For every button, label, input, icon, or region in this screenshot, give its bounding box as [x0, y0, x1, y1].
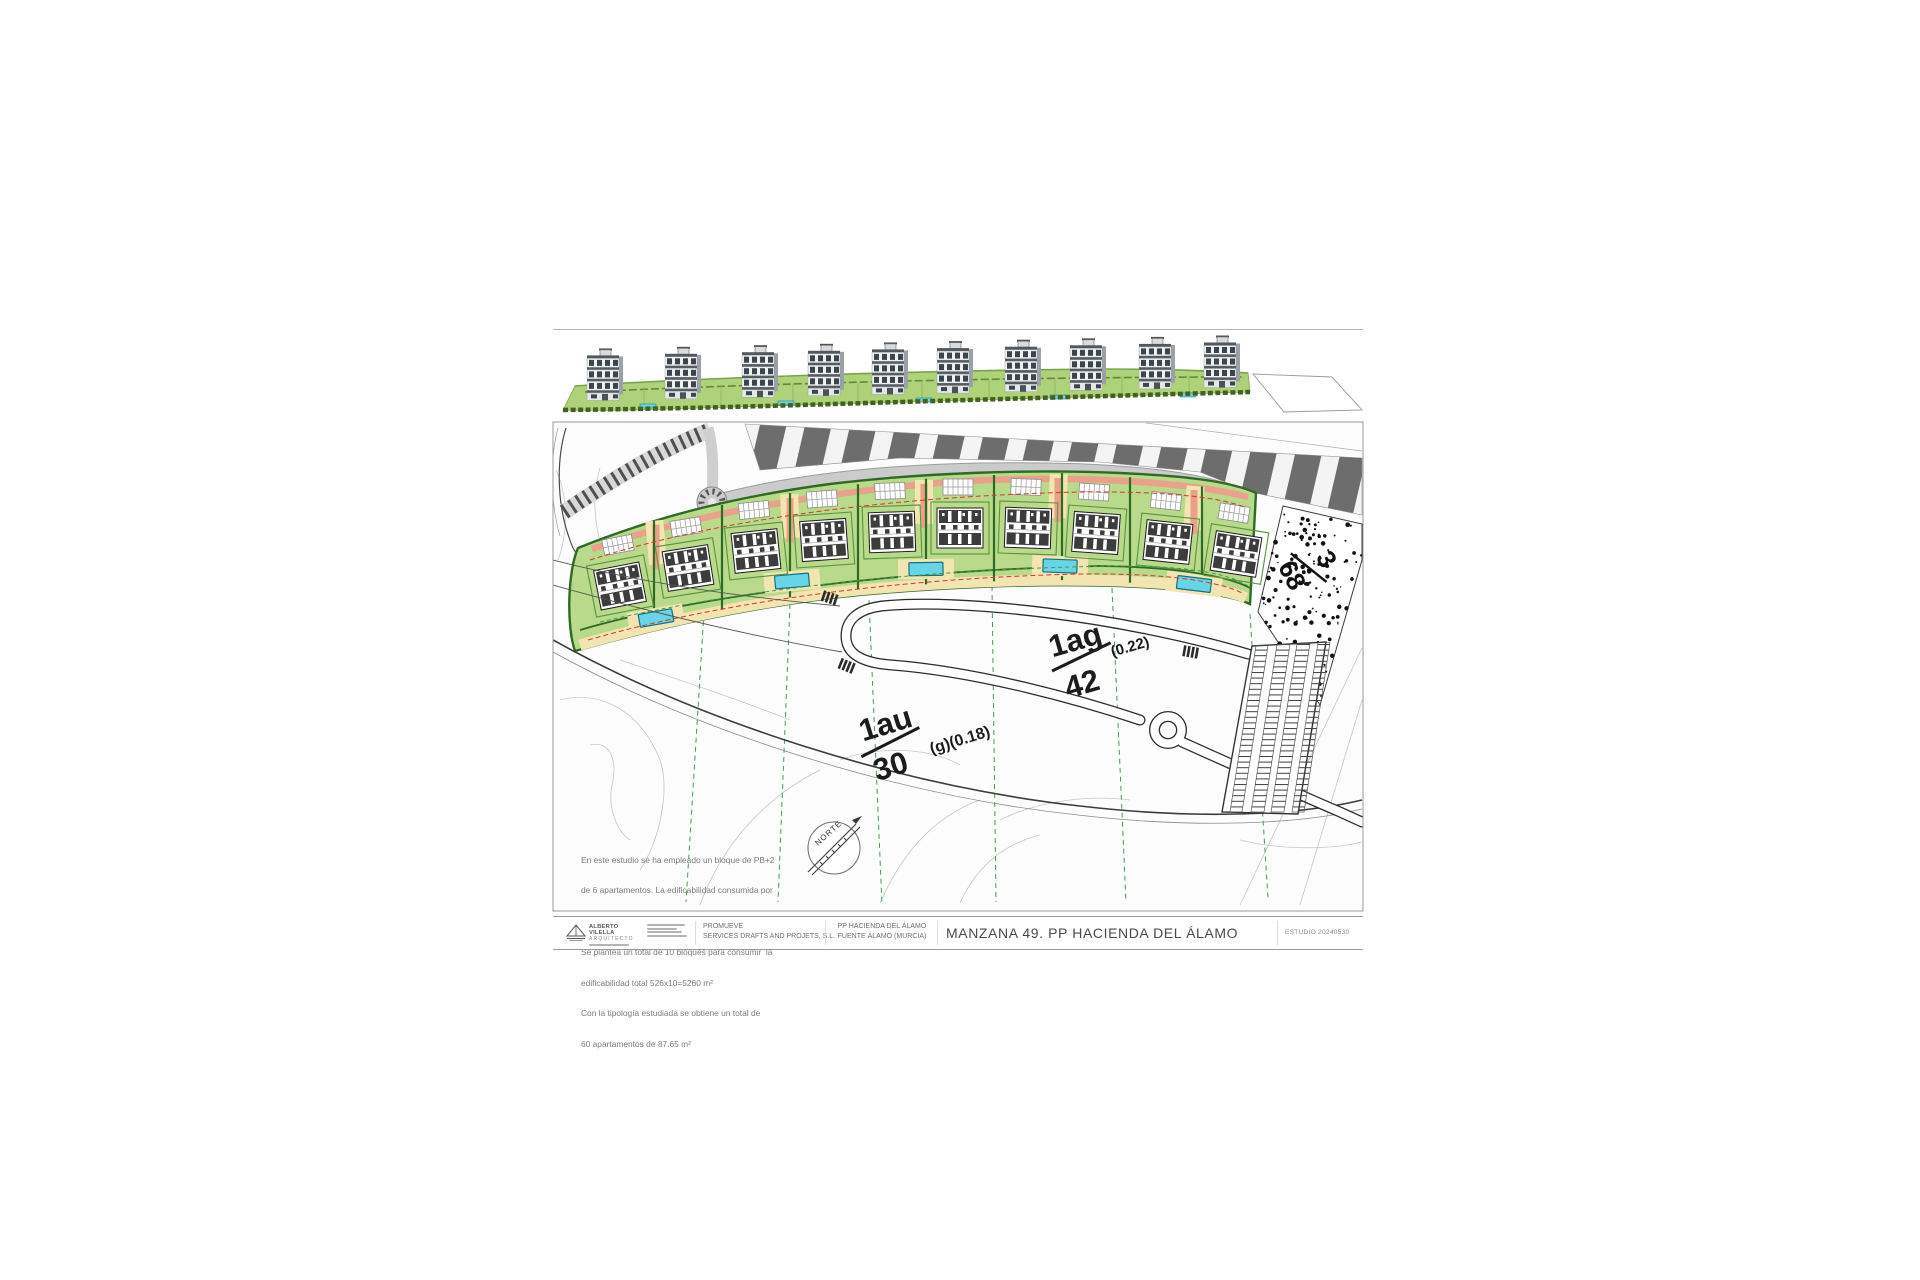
- speckle-dot: [1332, 577, 1336, 581]
- speckle-dot: [1352, 551, 1356, 555]
- parking-ladder: [875, 482, 906, 499]
- speckle-dot: [1286, 638, 1288, 640]
- speckle-dot: [1305, 542, 1309, 546]
- speckle-dot: [1350, 577, 1354, 581]
- speckle-dot: [1299, 535, 1304, 540]
- speckle-dot: [1355, 561, 1357, 563]
- swimming-pool: [774, 573, 809, 589]
- speckle-dot: [1350, 525, 1352, 527]
- project-location: FUENTE ÁLAMO (MURCIA): [833, 932, 931, 942]
- architect-subline: [589, 944, 629, 946]
- speckle-dot: [1309, 553, 1311, 555]
- title-block: ALBERTO VILELLA ARQUITECTO PROMUEVE SERV…: [553, 916, 1363, 950]
- elevation-building: [937, 341, 973, 393]
- speckle-dot: [1336, 615, 1340, 619]
- speckle-dot: [1328, 593, 1332, 597]
- speckle-dot: [1323, 534, 1326, 537]
- speckle-dot: [1293, 621, 1297, 625]
- speckle-dot: [1262, 597, 1266, 601]
- speckle-dot: [1272, 596, 1274, 598]
- speckle-dot: [1331, 616, 1335, 620]
- speckle-dot: [1327, 621, 1331, 625]
- project-name: PP HACIENDA DEL ÁLAMO: [833, 922, 931, 932]
- elevation-building: [587, 348, 623, 400]
- parking-ladder: [806, 490, 837, 508]
- speckle-dot: [1345, 522, 1350, 527]
- elevation-building: [808, 344, 844, 396]
- note-line: En este estudio se ha empleado un bloque…: [581, 855, 774, 865]
- speckle-dot: [1344, 561, 1346, 563]
- speckle-dot: [1265, 604, 1267, 606]
- speckle-dot: [1305, 532, 1307, 534]
- speckle-dot: [1273, 540, 1278, 545]
- speckle-dot: [1281, 620, 1284, 623]
- speckle-dot: [1314, 523, 1317, 526]
- elevation-building: [742, 345, 778, 397]
- sheet-reference: ESTUDIO 20240530: [1285, 929, 1349, 936]
- speckle-dot: [1278, 606, 1281, 609]
- elevation-building: [1139, 337, 1175, 389]
- speckle-dot: [1317, 633, 1322, 638]
- promoter-name: SERVICES DRAFTS AND PROJETS, S.L.: [703, 932, 835, 942]
- speckle-dot: [1329, 518, 1332, 521]
- parking-ladder: [738, 500, 770, 519]
- speckle-dot: [1318, 596, 1320, 598]
- speckle-dot: [1314, 528, 1316, 530]
- speckle-dot: [1309, 620, 1313, 624]
- speckle-dot: [1308, 536, 1312, 540]
- sheet-title: MANZANA 49. PP HACIENDA DEL ÁLAMO: [946, 925, 1238, 941]
- speckle-dot: [1287, 521, 1289, 523]
- speckle-dot: [1300, 522, 1303, 525]
- architect-logo-icon: [565, 923, 587, 943]
- speckle-dot: [1320, 594, 1322, 596]
- plan-building-footprint: [937, 508, 983, 548]
- speckle-dot: [1283, 514, 1285, 516]
- plan-building-footprint: [800, 518, 849, 561]
- speckle-dot: [1284, 531, 1286, 533]
- elevation-building: [1070, 338, 1106, 390]
- swimming-pool: [909, 562, 943, 576]
- note-line: Con la tipología estudiada se obtiene un…: [581, 1008, 774, 1018]
- speckle-dot: [1308, 523, 1310, 525]
- site-plan-drawing: 1ag (0.22) 42 1au 30 (g)(0.18) 3 68: [0, 0, 1920, 1280]
- speckle-dot: [1307, 610, 1311, 614]
- architect-role: ARQUITECTO: [589, 936, 641, 942]
- speckle-dot: [1325, 575, 1329, 579]
- project-cell: PP HACIENDA DEL ÁLAMO FUENTE ÁLAMO (MURC…: [833, 922, 931, 942]
- speckle-dot: [1286, 618, 1290, 622]
- speckle-dot: [1334, 535, 1336, 537]
- elevation-building: [1005, 340, 1041, 392]
- speckle-dot: [1275, 554, 1279, 558]
- speckle-dot: [1296, 532, 1299, 535]
- note-line: de 6 apartamentos. La edificabilidad con…: [581, 885, 774, 895]
- speckle-dot: [1321, 541, 1326, 546]
- speckle-dot: [1315, 587, 1317, 589]
- speckle-dot: [1330, 654, 1334, 658]
- architect-identity: ALBERTO VILELLA ARQUITECTO: [589, 924, 641, 946]
- speckle-dot: [1315, 611, 1317, 613]
- speckle-dot: [1310, 595, 1312, 597]
- speckle-dot: [1360, 554, 1362, 556]
- speckle-dot: [1292, 532, 1296, 536]
- speckle-dot: [1274, 614, 1277, 617]
- speckle-dot: [1336, 588, 1338, 590]
- speckle-dot: [1340, 586, 1342, 588]
- speckle-dot: [1337, 623, 1339, 625]
- swimming-pool: [1043, 559, 1077, 573]
- speckle-dot: [1266, 576, 1271, 581]
- drawing-sheet-page: { "colors": { "plot_green": "#b9d98b", "…: [0, 0, 1920, 1280]
- speckle-dot: [1337, 605, 1342, 610]
- speckle-dot: [1277, 562, 1278, 563]
- speckle-dot: [1337, 622, 1338, 623]
- architect-contact-block: [647, 924, 687, 937]
- speckle-dot: [1263, 602, 1265, 604]
- plan-building-footprint: [1004, 507, 1051, 549]
- plan-building-footprint: [1072, 511, 1121, 554]
- speckle-dot: [1312, 608, 1314, 610]
- elevation-building: [872, 342, 908, 394]
- plan-building-footprint: [1210, 531, 1262, 578]
- speckle-dot: [1344, 540, 1346, 542]
- speckle-dot: [1267, 598, 1272, 603]
- speckle-dot: [1313, 542, 1316, 545]
- speckle-dot: [1317, 535, 1321, 539]
- speckle-dot: [1318, 522, 1320, 524]
- speckle-dot: [1292, 605, 1295, 608]
- speckle-dot: [1344, 606, 1348, 610]
- note-line: edificabilidad total 526x10=5260 m²: [581, 978, 774, 988]
- promoter-label: PROMUEVE: [703, 922, 835, 932]
- speckle-dot: [1306, 518, 1310, 522]
- speckle-dot: [1271, 552, 1274, 555]
- speckle-dot: [1328, 638, 1332, 642]
- plan-building-footprint: [731, 529, 781, 574]
- speckle-dot: [1284, 535, 1286, 537]
- speckle-dot: [1288, 531, 1292, 535]
- speckle-dot: [1305, 617, 1308, 620]
- speckle-dot: [1333, 585, 1335, 587]
- elevation-strip: [563, 336, 1362, 413]
- speckle-dot: [1264, 621, 1267, 624]
- speckle-dot: [1268, 625, 1271, 628]
- parking-ladder: [943, 479, 973, 495]
- speckle-dot: [1312, 533, 1315, 536]
- speckle-dot: [1287, 598, 1290, 601]
- note-line: 60 apartamentos de 87.65 m²: [581, 1039, 774, 1049]
- elevation-empty-plot-outline: [1253, 374, 1362, 412]
- speckle-dot: [1301, 517, 1305, 521]
- speckle-dot: [1336, 591, 1339, 594]
- plan-building-footprint: [868, 511, 915, 553]
- speckle-dot: [1268, 571, 1270, 573]
- plan-building-footprint: [1143, 520, 1193, 565]
- architect-name: ALBERTO VILELLA: [589, 924, 641, 936]
- promoter-cell: PROMUEVE SERVICES DRAFTS AND PROJETS, S.…: [703, 922, 835, 942]
- elevation-building: [665, 347, 701, 399]
- elevation-building: [1204, 336, 1240, 388]
- speckle-dot: [1322, 614, 1326, 618]
- speckle-dot: [1274, 588, 1278, 592]
- speckle-dot: [1321, 592, 1323, 594]
- speckle-dot: [1303, 528, 1307, 532]
- speckle-dot: [1285, 606, 1290, 611]
